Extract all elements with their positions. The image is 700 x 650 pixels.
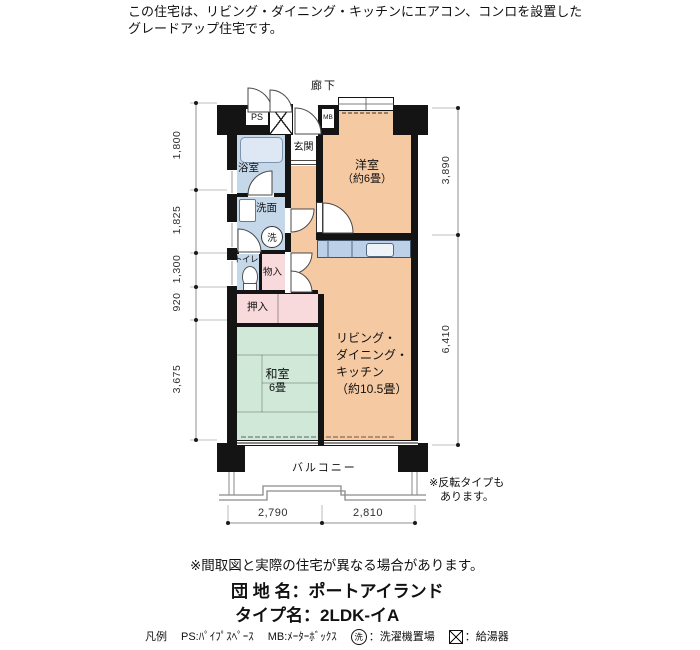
bath-door-gap bbox=[248, 193, 274, 197]
legend-washer: 洗 ：洗濯機置場 bbox=[351, 629, 435, 645]
flip-note-line1: ※反転タイプも bbox=[429, 476, 504, 490]
wall-window-divider bbox=[318, 440, 324, 446]
toilet-label: トイレ bbox=[234, 255, 258, 265]
legend-washer-label: ：洗濯機置場 bbox=[369, 631, 435, 644]
corridor-label: 廊下 bbox=[311, 80, 337, 93]
ldk-door-gap bbox=[285, 252, 291, 293]
type-name: タイプ名：2LDK-イA bbox=[235, 606, 399, 626]
washroom-window bbox=[227, 222, 237, 248]
dim-left-920: 920 bbox=[171, 272, 183, 332]
meter-box: MB bbox=[321, 108, 335, 129]
wall-toilet-storage bbox=[259, 254, 262, 292]
flip-note: ※反転タイプも あります。 bbox=[429, 476, 504, 504]
washroom-label: 洗面 bbox=[256, 202, 277, 214]
legend-mb: MB:ﾒｰﾀｰﾎﾞｯｸｽ bbox=[268, 631, 337, 644]
balcony-outline bbox=[219, 472, 426, 500]
ldk-line1: リビング・ bbox=[336, 330, 408, 347]
kitchen-counter bbox=[317, 240, 411, 258]
wall-japanese-ldk bbox=[318, 294, 324, 440]
washroom-door-gap bbox=[285, 208, 291, 233]
western-room-size: （約6畳） bbox=[323, 173, 411, 186]
dim-right-3890: 3,890 bbox=[440, 140, 452, 200]
ldk-line3: キッチン bbox=[336, 364, 408, 381]
estate-name: 団 地 名：ポートアイランド bbox=[231, 582, 444, 602]
western-room-window bbox=[338, 97, 394, 111]
balcony-window-band bbox=[237, 440, 418, 446]
wall-corner-bottom-right bbox=[398, 443, 428, 472]
entrance-opening bbox=[293, 104, 318, 136]
legend-heater-label: ：給湯器 bbox=[465, 631, 509, 644]
flip-note-line2: あります。 bbox=[429, 490, 504, 504]
floorplan-page: この住宅は、リビング・ダイニング・キッチンにエアコン、コンロを設置した グレード… bbox=[0, 0, 700, 650]
header-description: この住宅は、リビング・ダイニング・キッチンにエアコン、コンロを設置した グレード… bbox=[128, 3, 582, 37]
japanese-room-label: 和室 6畳 bbox=[237, 368, 318, 394]
wall-kitchen bbox=[316, 233, 411, 240]
dim-right-6410: 6,410 bbox=[440, 309, 452, 369]
wall-corner-bottom-left bbox=[217, 443, 245, 472]
western-room-name: 洋室 bbox=[323, 159, 411, 173]
japanese-room-size: 6畳 bbox=[237, 382, 318, 395]
genkan-step-line-2 bbox=[291, 164, 316, 165]
footer-disclaimer: ※間取図と実際の住宅が異なる場合があります。 bbox=[190, 558, 483, 574]
genkan-step-line-1 bbox=[291, 160, 316, 161]
balcony-label: バルコニー bbox=[292, 462, 357, 475]
japanese-room-name: 和室 bbox=[237, 368, 318, 382]
ldk-line4: （約10.5畳） bbox=[336, 381, 408, 398]
header-line1: この住宅は、リビング・ダイニング・キッチンにエアコン、コンロを設置した bbox=[128, 3, 582, 20]
western-room-label: 洋室 （約6畳） bbox=[323, 159, 411, 185]
washer-circle-icon: 洗 bbox=[351, 629, 367, 645]
bath-window bbox=[227, 170, 237, 194]
wall-right bbox=[411, 130, 418, 445]
dim-bottom-2790: 2,790 bbox=[243, 507, 303, 520]
washer-place-symbol: 洗 bbox=[261, 226, 283, 248]
header-line2: グレードアップ住宅です。 bbox=[128, 20, 582, 37]
genkan-label: 玄関 bbox=[291, 142, 316, 154]
legend: 凡例 PS:ﾊﾟｲﾌﾟｽﾍﾟｰｽ MB:ﾒｰﾀｰﾎﾞｯｸｽ 洗 ：洗濯機置場 ：… bbox=[145, 629, 509, 645]
dim-bottom-2810: 2,810 bbox=[338, 507, 398, 520]
wall-hall-right bbox=[316, 135, 323, 203]
legend-title: 凡例 bbox=[145, 631, 167, 644]
western-door-leaf bbox=[316, 202, 323, 233]
dim-left-1800: 1,800 bbox=[171, 115, 183, 175]
water-heater-box-icon bbox=[269, 104, 293, 135]
ldk-line2: ダイニング・ bbox=[336, 347, 408, 364]
washbasin bbox=[239, 199, 256, 222]
storage-label: 物入 bbox=[263, 268, 282, 279]
kitchen-sink bbox=[366, 243, 394, 257]
pipe-space-box: PS bbox=[245, 108, 269, 126]
bath-label: 浴室 bbox=[238, 162, 259, 174]
heater-box-icon bbox=[449, 630, 463, 644]
wall-closet-japanese bbox=[237, 323, 318, 327]
legend-heater: ：給湯器 bbox=[449, 630, 509, 644]
bathtub bbox=[240, 137, 283, 163]
legend-ps: PS:ﾊﾟｲﾌﾟｽﾍﾟｰｽ bbox=[181, 631, 254, 644]
ldk-label: リビング・ ダイニング・ キッチン （約10.5畳） bbox=[336, 330, 408, 398]
dim-left-3675: 3,675 bbox=[171, 349, 183, 409]
wall-closet-top bbox=[237, 290, 318, 294]
closet-label: 押入 bbox=[247, 301, 268, 313]
